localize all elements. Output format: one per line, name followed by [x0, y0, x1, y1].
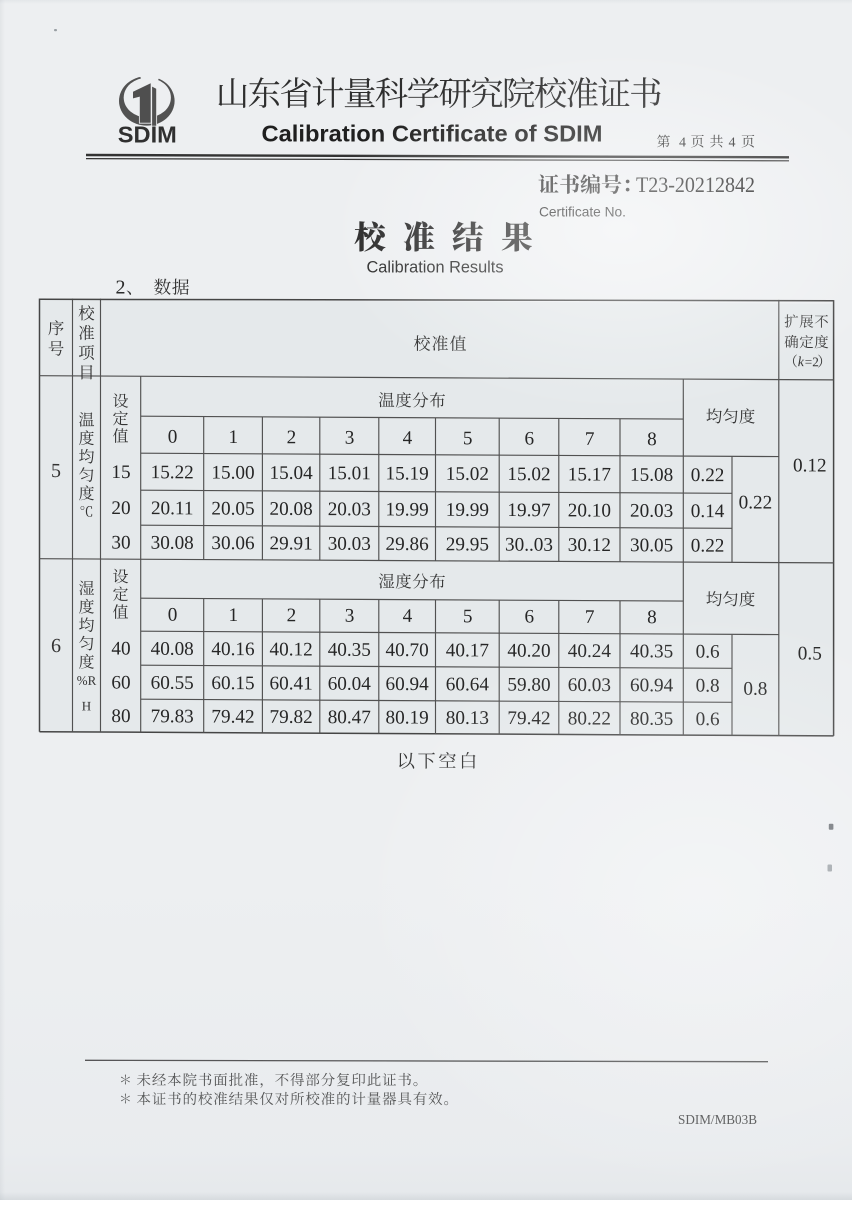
svg-text:5: 5: [463, 428, 473, 449]
svg-text:2: 2: [287, 427, 297, 448]
svg-text:8: 8: [647, 607, 657, 628]
svg-text:0.8: 0.8: [696, 676, 720, 697]
svg-text:40.17: 40.17: [446, 640, 490, 661]
svg-text:15.02: 15.02: [507, 464, 550, 485]
svg-text:40.35: 40.35: [328, 640, 371, 661]
svg-text:60.94: 60.94: [630, 675, 674, 696]
svg-text:0.22: 0.22: [691, 536, 725, 557]
svg-text:30.08: 30.08: [151, 533, 194, 554]
svg-text:60: 60: [111, 672, 130, 693]
svg-text:30.06: 30.06: [211, 533, 255, 554]
svg-text:30.05: 30.05: [630, 535, 673, 556]
svg-text:59.80: 59.80: [507, 675, 550, 696]
svg-text:60.41: 60.41: [270, 673, 313, 694]
svg-text:20.10: 20.10: [568, 500, 611, 521]
svg-text:79.83: 79.83: [151, 706, 194, 727]
svg-text:60.55: 60.55: [151, 673, 194, 694]
svg-text:30.03: 30.03: [328, 534, 371, 555]
svg-text:30: 30: [111, 532, 130, 553]
svg-text:0.12: 0.12: [793, 455, 827, 476]
svg-text:0.22: 0.22: [739, 492, 773, 513]
svg-text:40.70: 40.70: [386, 640, 429, 661]
svg-text:19.99: 19.99: [386, 499, 429, 520]
svg-text:15.08: 15.08: [630, 465, 673, 486]
svg-text:29.86: 29.86: [386, 534, 430, 555]
svg-text:60.94: 60.94: [386, 674, 430, 695]
svg-text:15.00: 15.00: [211, 463, 254, 484]
svg-text:40.16: 40.16: [211, 639, 255, 660]
svg-text:Calibration Results: Calibration Results: [367, 258, 504, 277]
svg-text:20.03: 20.03: [630, 501, 673, 522]
svg-text:60.64: 60.64: [446, 674, 490, 695]
svg-text:79.42: 79.42: [507, 708, 550, 729]
svg-text:8: 8: [647, 429, 657, 450]
svg-text:80: 80: [111, 706, 130, 727]
svg-text:60.04: 60.04: [328, 674, 372, 695]
svg-text:20.05: 20.05: [211, 499, 254, 520]
svg-text:80.47: 80.47: [328, 707, 372, 728]
svg-text:19.99: 19.99: [446, 500, 489, 521]
svg-text:1: 1: [229, 605, 239, 626]
svg-text:0.8: 0.8: [743, 679, 767, 700]
svg-text:0: 0: [168, 427, 178, 448]
svg-text:15.19: 15.19: [386, 463, 429, 484]
svg-text:0.14: 0.14: [691, 501, 725, 522]
svg-text:40.12: 40.12: [270, 639, 313, 660]
svg-text:2: 2: [287, 605, 297, 626]
svg-text:30..03: 30..03: [505, 535, 553, 556]
svg-text:0.5: 0.5: [798, 643, 822, 664]
svg-text:3: 3: [345, 428, 355, 449]
svg-text:15.22: 15.22: [151, 462, 194, 483]
svg-text:40.08: 40.08: [151, 639, 194, 660]
svg-text:15.17: 15.17: [568, 464, 612, 485]
svg-text:5: 5: [463, 606, 473, 627]
svg-text:1: 1: [229, 427, 239, 448]
svg-text:4: 4: [403, 606, 413, 627]
svg-text:20.11: 20.11: [151, 498, 193, 519]
svg-text:6: 6: [525, 429, 535, 450]
svg-text:40: 40: [111, 638, 130, 659]
svg-text:15: 15: [111, 462, 130, 483]
svg-text:k: k: [798, 355, 805, 370]
svg-text:0: 0: [168, 605, 178, 626]
svg-text:=2: =2: [805, 354, 819, 369]
svg-text:80.13: 80.13: [446, 708, 489, 729]
svg-text:6: 6: [51, 635, 61, 657]
svg-text:80.35: 80.35: [630, 709, 673, 730]
svg-text:6: 6: [525, 607, 535, 628]
svg-text:4: 4: [679, 135, 686, 150]
svg-text:80.22: 80.22: [568, 708, 611, 729]
svg-text:4: 4: [729, 135, 736, 150]
svg-text:Calibration Certificate of SDI: Calibration Certificate of SDIM: [262, 120, 603, 146]
svg-text:29.95: 29.95: [446, 534, 489, 555]
svg-text:79.82: 79.82: [270, 707, 313, 728]
svg-text:30.12: 30.12: [568, 535, 611, 556]
svg-text:Certificate No.: Certificate No.: [539, 205, 626, 220]
svg-text:40.24: 40.24: [568, 641, 612, 662]
svg-text:SDIM: SDIM: [118, 122, 177, 148]
svg-text:60.03: 60.03: [568, 675, 611, 696]
svg-text:SDIM/MB03B: SDIM/MB03B: [678, 1112, 757, 1127]
svg-text:T23-20212842: T23-20212842: [636, 172, 755, 197]
svg-text:7: 7: [585, 607, 595, 628]
svg-text:H: H: [82, 698, 91, 713]
svg-text:80.19: 80.19: [386, 707, 429, 728]
svg-text:0.6: 0.6: [696, 642, 720, 663]
svg-text:5: 5: [51, 460, 61, 482]
svg-text:0.6: 0.6: [696, 709, 720, 730]
svg-text:15.04: 15.04: [270, 463, 314, 484]
svg-text:20.08: 20.08: [270, 499, 313, 520]
svg-text:15.02: 15.02: [446, 464, 489, 485]
svg-text:0.22: 0.22: [691, 465, 725, 486]
svg-text:20: 20: [111, 498, 130, 519]
svg-text:%R: %R: [77, 673, 97, 688]
svg-text:4: 4: [403, 428, 413, 449]
svg-text:40.35: 40.35: [630, 641, 673, 662]
svg-text:60.15: 60.15: [211, 673, 254, 694]
svg-text:7: 7: [585, 429, 595, 450]
svg-text:20.03: 20.03: [328, 499, 371, 520]
svg-text:15.01: 15.01: [328, 463, 371, 484]
svg-text:2: 2: [116, 277, 126, 299]
svg-text:3: 3: [345, 606, 355, 627]
svg-text:79.42: 79.42: [211, 707, 254, 728]
svg-text:29.91: 29.91: [270, 533, 313, 554]
svg-text:19.97: 19.97: [507, 500, 551, 521]
svg-text:40.20: 40.20: [507, 641, 550, 662]
